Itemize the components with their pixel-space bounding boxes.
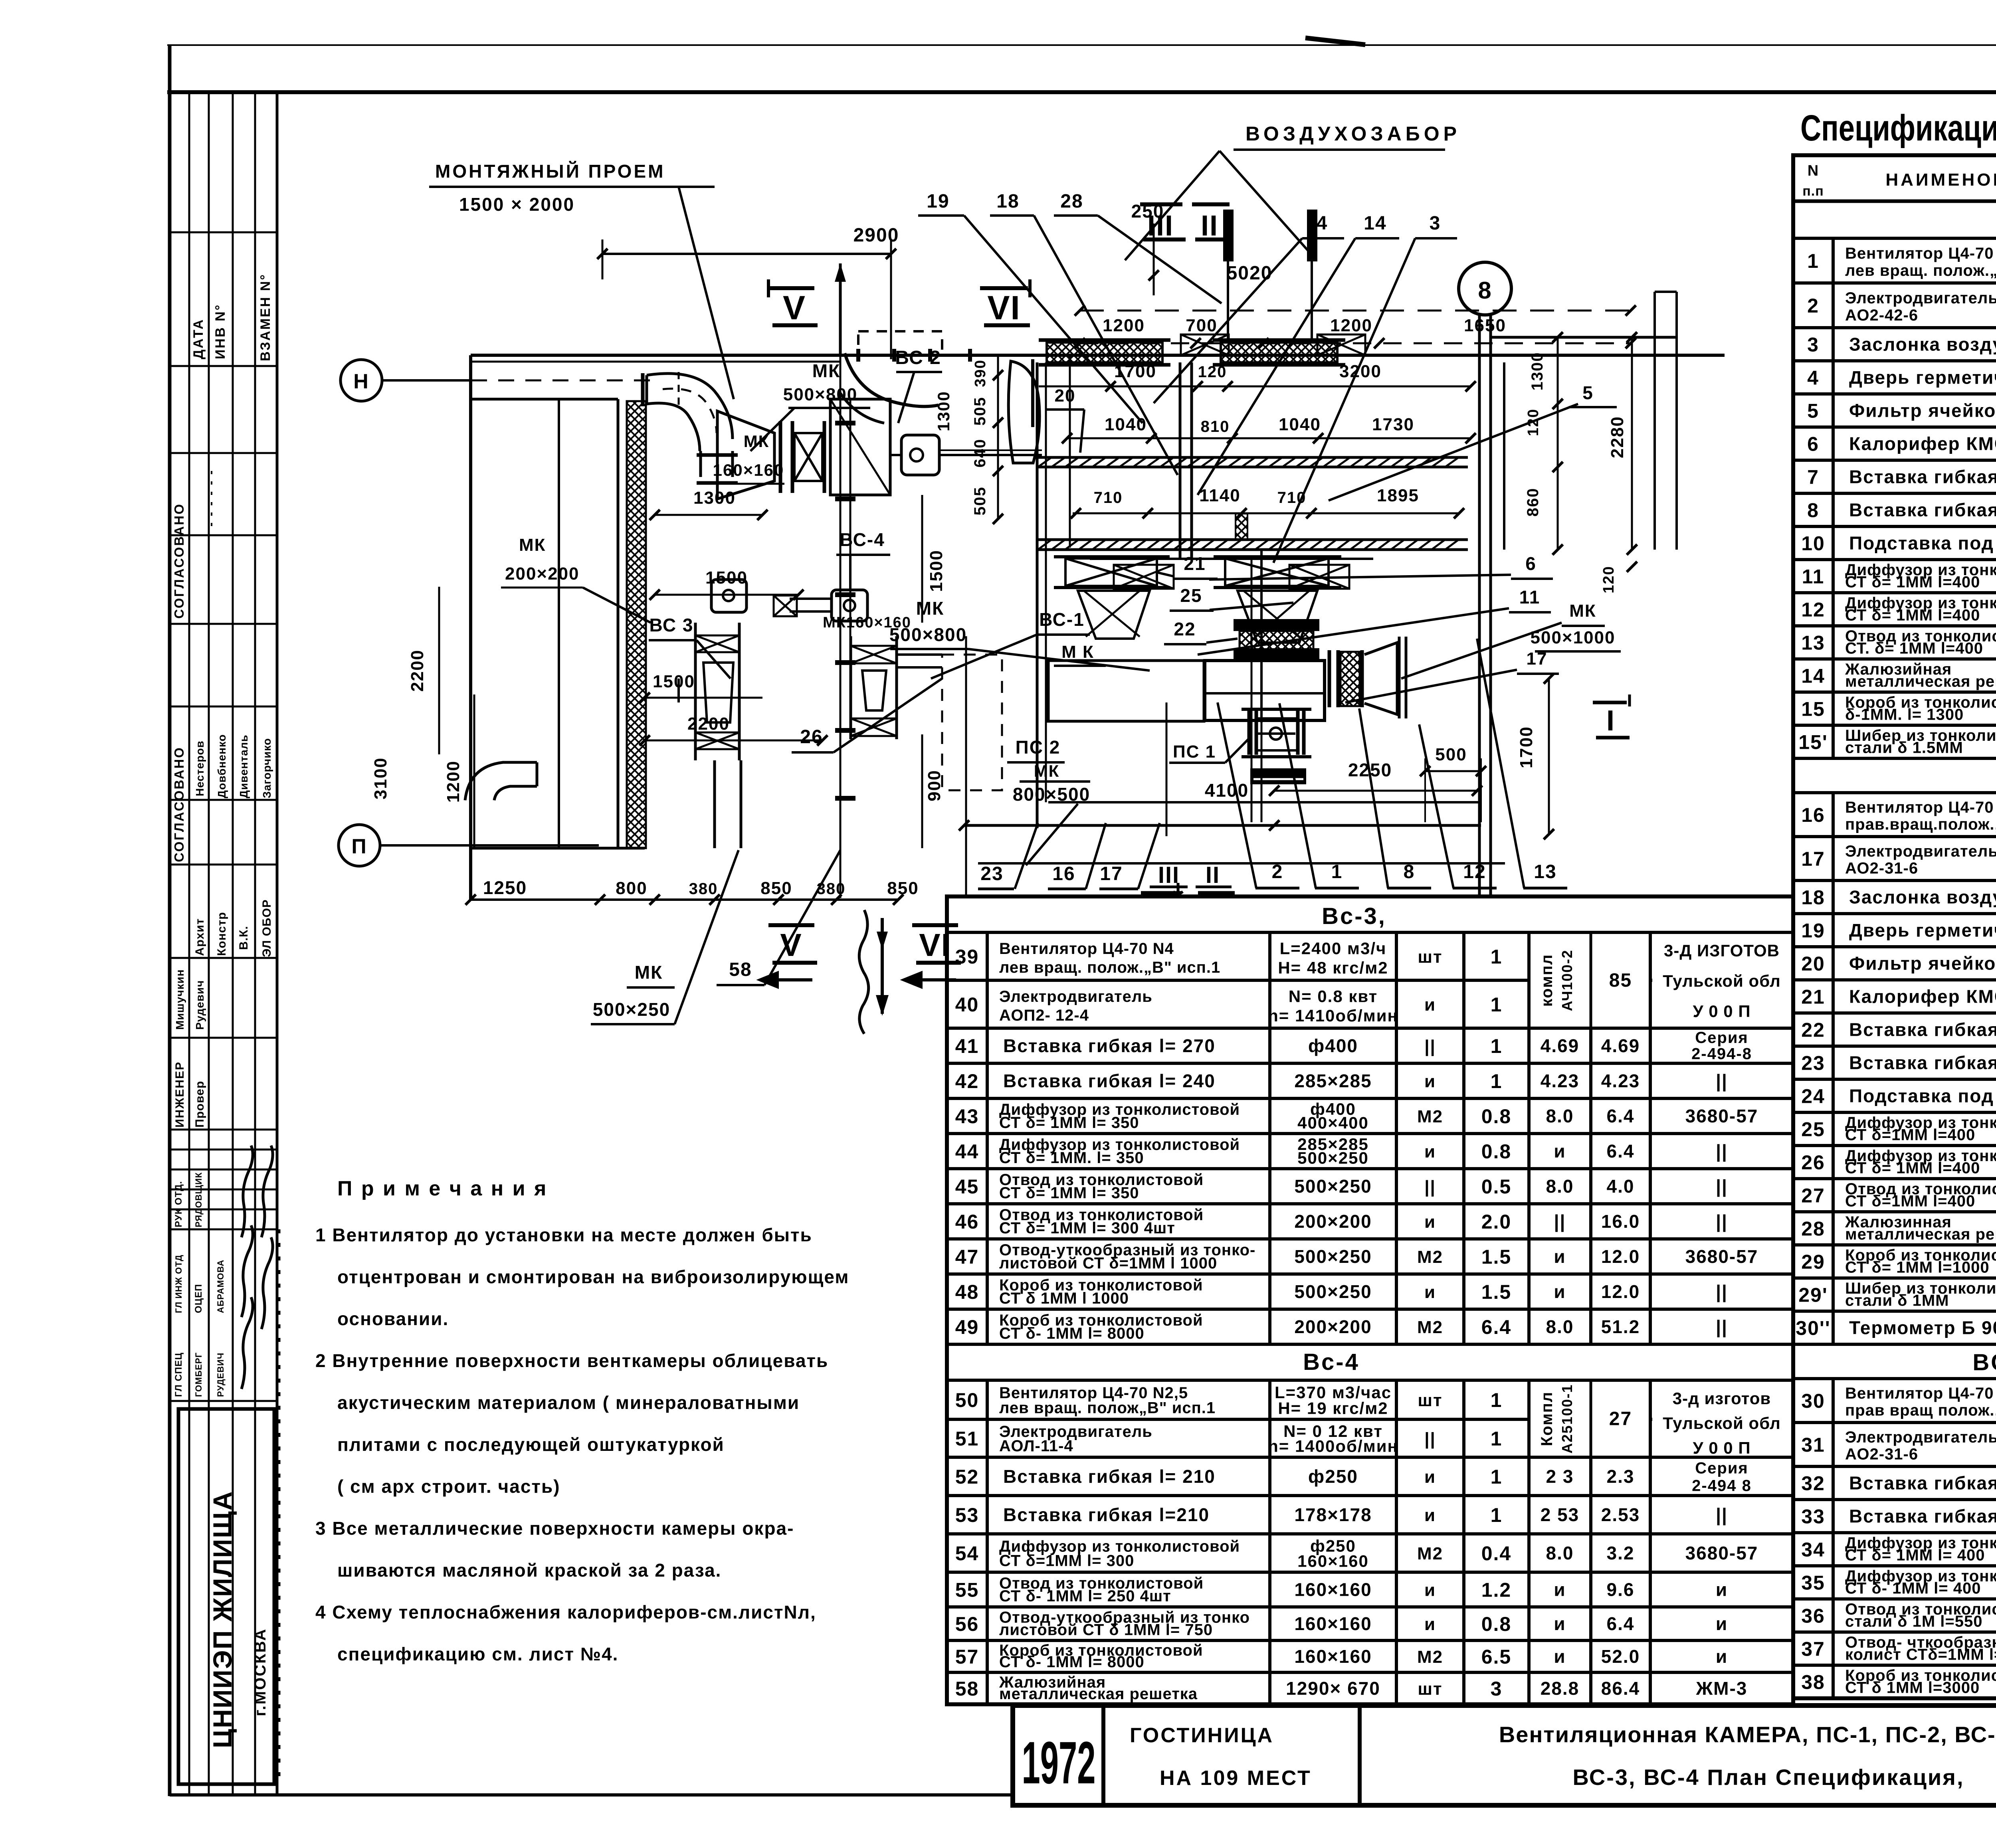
svg-text:Вставка гибкая l=300: Вставка гибкая l=300 <box>1849 1506 1996 1527</box>
svg-text:21: 21 <box>1184 553 1206 574</box>
svg-text:п.п: п.п <box>1802 184 1824 199</box>
svg-text:и: и <box>1716 1646 1728 1667</box>
svg-text:32: 32 <box>1801 1472 1825 1495</box>
svg-text:шиваются масляной краско: шиваются масляной краской за 2 раза. <box>337 1560 721 1581</box>
svg-text:n= 1410об/мин: n= 1410об/мин <box>1268 1006 1398 1025</box>
svg-text:В.К.: В.К. <box>237 926 250 950</box>
svg-text:Вставка гибкая l=300: Вставка гибкая l=300 <box>1849 1053 1996 1073</box>
svg-text:58: 58 <box>955 1678 979 1700</box>
svg-text:Дивенталь: Дивенталь <box>238 734 250 798</box>
svg-text:РУК ОТД.: РУК ОТД. <box>173 1181 184 1227</box>
svg-text:и: и <box>1424 1581 1436 1600</box>
svg-text:||: || <box>1716 1141 1728 1161</box>
svg-text:Вставка гибкая l=320: Вставка гибкая l=320 <box>1849 1019 1996 1040</box>
svg-text:СТ δ=1ММ l=400: СТ δ=1ММ l=400 <box>1845 1193 1975 1210</box>
svg-text:стали δ 1М l=550: стали δ 1М l=550 <box>1845 1613 1982 1630</box>
svg-text:25: 25 <box>1801 1118 1825 1141</box>
svg-text:ЦНИИЭП ЖИЛИЩА: ЦНИИЭП ЖИЛИЩА <box>208 1491 237 1748</box>
svg-text:6: 6 <box>1525 553 1537 574</box>
svg-text:700: 700 <box>1186 316 1217 335</box>
svg-text:Тульской обл: Тульской обл <box>1663 971 1781 990</box>
svg-text:МК: МК <box>635 962 663 983</box>
svg-text:СТ δ= 1ММ. l= 350: СТ δ= 1ММ. l= 350 <box>999 1149 1144 1167</box>
svg-text:1500 × 2000: 1500 × 2000 <box>459 194 575 215</box>
svg-text:2.0: 2.0 <box>1481 1211 1512 1233</box>
svg-text:СТ δ= 1ММ l=400: СТ δ= 1ММ l=400 <box>1845 574 1980 591</box>
svg-text:2: 2 <box>1807 295 1819 317</box>
svg-text:390: 390 <box>972 359 989 387</box>
svg-text:11: 11 <box>1519 587 1541 607</box>
svg-text:АО2-31-6: АО2-31-6 <box>1845 859 1918 877</box>
svg-text:2200: 2200 <box>408 649 427 692</box>
svg-text:1.5: 1.5 <box>1481 1246 1512 1268</box>
svg-text:N= 0.8 квт: N= 0.8 квт <box>1289 987 1378 1005</box>
svg-text:||: || <box>1424 1037 1436 1057</box>
svg-text:3: 3 <box>1491 1678 1503 1700</box>
svg-text:Провер: Провер <box>193 1081 206 1128</box>
svg-text:ВС-3, ВС-4 План Специфика: ВС-3, ВС-4 План Спецификация, <box>1572 1765 1964 1790</box>
svg-text:5020: 5020 <box>1227 263 1273 284</box>
svg-text:Тульской обл: Тульской обл <box>1663 1414 1781 1432</box>
svg-text:2 3: 2 3 <box>1546 1466 1574 1487</box>
svg-text:Электродвигатель: Электродвигатель <box>1845 843 1996 860</box>
svg-text:710: 710 <box>1277 489 1307 507</box>
svg-text:6.4: 6.4 <box>1607 1106 1635 1126</box>
svg-text:3: 3 <box>1430 213 1441 234</box>
svg-text:40: 40 <box>955 993 979 1016</box>
svg-text:Дверь герметическая: Дверь герметическая <box>1849 367 1996 388</box>
svg-text:29: 29 <box>1801 1251 1825 1273</box>
svg-text:2 Внутренние поверхности ве: 2 Внутренние поверхности венткамеры обли… <box>315 1350 828 1371</box>
svg-text:2280: 2280 <box>1608 416 1627 458</box>
svg-text:и: и <box>1554 1579 1566 1600</box>
svg-text:1895: 1895 <box>1377 486 1419 505</box>
svg-text:33: 33 <box>1801 1506 1825 1528</box>
svg-text:12.0: 12.0 <box>1601 1281 1640 1302</box>
svg-text:1 Вентилятор до установки: 1 Вентилятор до установки на месте долже… <box>315 1225 812 1245</box>
svg-text:М2: М2 <box>1417 1544 1443 1563</box>
svg-text:г.МОСКВА: г.МОСКВА <box>251 1628 269 1716</box>
svg-text:шт: шт <box>1418 1391 1442 1410</box>
svg-text:1972: 1972 <box>1022 1729 1096 1796</box>
svg-text:17: 17 <box>1100 863 1123 884</box>
svg-text:1: 1 <box>1491 1466 1503 1488</box>
svg-text:850: 850 <box>760 878 792 898</box>
svg-text:0.8: 0.8 <box>1481 1613 1512 1635</box>
svg-text:5: 5 <box>1582 382 1594 403</box>
svg-text:( см арх строит. часть): ( см арх строит. часть) <box>337 1476 560 1497</box>
svg-text:16: 16 <box>1801 804 1825 826</box>
svg-text:Дверь герметическая: Дверь герметическая <box>1849 920 1996 941</box>
svg-text:1300: 1300 <box>934 391 953 431</box>
svg-text:2-494-8: 2-494-8 <box>1691 1045 1752 1063</box>
svg-text:200×200: 200×200 <box>1294 1211 1372 1232</box>
svg-text:500: 500 <box>1435 745 1467 764</box>
svg-text:1200: 1200 <box>1330 316 1372 335</box>
svg-text:1: 1 <box>1491 1035 1503 1057</box>
svg-text:М2: М2 <box>1417 1318 1443 1337</box>
svg-text:и: и <box>1716 1579 1728 1600</box>
svg-text:800: 800 <box>616 878 647 898</box>
svg-text:51.2: 51.2 <box>1601 1316 1640 1337</box>
svg-text:4.69: 4.69 <box>1541 1035 1580 1056</box>
svg-text:16.0: 16.0 <box>1601 1211 1640 1232</box>
svg-text:Электродвигатель: Электродвигатель <box>999 988 1152 1005</box>
svg-text:25: 25 <box>1180 585 1202 606</box>
svg-text:200×200: 200×200 <box>505 564 580 584</box>
svg-text:14: 14 <box>1801 665 1825 687</box>
svg-text:МК: МК <box>916 598 944 619</box>
svg-text:Подставка под калорифер: Подставка под калорифер <box>1849 1086 1996 1106</box>
svg-text:28.8: 28.8 <box>1541 1678 1580 1699</box>
svg-text:120: 120 <box>1525 408 1542 436</box>
svg-text:N: N <box>1808 162 1819 179</box>
svg-text:ВС-4: ВС-4 <box>840 529 885 550</box>
svg-text:1.5: 1.5 <box>1481 1281 1512 1303</box>
svg-text:ЖМ-3: ЖМ-3 <box>1696 1678 1748 1699</box>
svg-text:ДАТА: ДАТА <box>191 319 206 359</box>
svg-text:46: 46 <box>955 1211 979 1233</box>
svg-text:ф400: ф400 <box>1308 1035 1358 1056</box>
svg-text:1700: 1700 <box>1517 726 1536 768</box>
svg-text:53: 53 <box>955 1504 979 1526</box>
svg-text:и: и <box>1424 1506 1436 1525</box>
svg-text:Фильтр ячейковый: Фильтр ячейковый <box>1849 400 1996 421</box>
svg-text:П: П <box>351 835 367 858</box>
svg-text:50: 50 <box>955 1389 979 1411</box>
svg-text:2.3: 2.3 <box>1607 1466 1635 1487</box>
svg-text:3-Д ИЗГОТОВ: 3-Д ИЗГОТОВ <box>1664 941 1780 960</box>
svg-text:5: 5 <box>1807 400 1819 422</box>
svg-text:47: 47 <box>955 1246 979 1268</box>
svg-text:ИНВ N°: ИНВ N° <box>213 304 228 359</box>
svg-text:Компл: Компл <box>1538 1391 1556 1446</box>
svg-text:3680-57: 3680-57 <box>1685 1246 1758 1267</box>
svg-text:V: V <box>780 927 802 963</box>
svg-text:19: 19 <box>1801 920 1825 942</box>
svg-text:27: 27 <box>1609 1409 1632 1430</box>
svg-text:и: и <box>1554 1246 1566 1267</box>
svg-text:Вставка гибкая l= 210: Вставка гибкая l= 210 <box>1003 1466 1216 1487</box>
svg-text:6.4: 6.4 <box>1607 1613 1635 1634</box>
svg-text:Вентиляционная КАМЕРА, ПС-: Вентиляционная КАМЕРА, ПС-1, ПС-2, ВС-1;… <box>1499 1722 1996 1747</box>
svg-text:1140: 1140 <box>1199 486 1240 505</box>
svg-text:МОНТЯЖНЫЙ ПРОЕМ: МОНТЯЖНЫЙ ПРОЕМ <box>435 161 665 182</box>
svg-text:Нестеров: Нестеров <box>194 740 206 796</box>
svg-text:2200: 2200 <box>687 714 730 734</box>
svg-text:500×250: 500×250 <box>1294 1281 1372 1302</box>
svg-text:6.4: 6.4 <box>1607 1141 1635 1161</box>
svg-text:505: 505 <box>971 397 989 426</box>
svg-text:||: || <box>1424 1429 1436 1449</box>
svg-text:2900: 2900 <box>853 225 899 246</box>
svg-text:||: || <box>1716 1176 1728 1197</box>
svg-text:СТ δ= 1ММ l= 400: СТ δ= 1ММ l= 400 <box>1845 1547 1985 1564</box>
svg-text:850: 850 <box>887 878 919 898</box>
svg-text:1: 1 <box>1491 993 1503 1016</box>
svg-text:ИНЖЕНЕР: ИНЖЕНЕР <box>173 1061 186 1128</box>
svg-text:МК: МК <box>812 360 840 381</box>
svg-text:12: 12 <box>1801 599 1825 621</box>
svg-text:Калорифер КМС: Калорифер КМС <box>1849 433 1996 454</box>
svg-text:II: II <box>1206 862 1220 888</box>
svg-text:У 0 0 П: У 0 0 П <box>1693 1002 1750 1021</box>
svg-text:54: 54 <box>955 1542 979 1565</box>
svg-text:СОГЛАСОВАНО: СОГЛАСОВАНО <box>172 503 186 619</box>
svg-text:Вс-3,: Вс-3, <box>1322 903 1386 929</box>
svg-text:ОЦЕП: ОЦЕП <box>193 1284 204 1313</box>
svg-text:и: и <box>1424 1615 1436 1634</box>
svg-text:Калорифер КМС-4: Калорифер КМС-4 <box>1849 986 1996 1007</box>
svg-text:лев вращ. полож„В" исп.1: лев вращ. полож„В" исп.1 <box>999 1399 1216 1417</box>
svg-text:АОП2- 12-4: АОП2- 12-4 <box>999 1007 1089 1024</box>
svg-text:31: 31 <box>1801 1434 1825 1456</box>
svg-text:1040: 1040 <box>1105 415 1147 434</box>
svg-text:3-д изготов: 3-д изготов <box>1673 1389 1771 1408</box>
svg-text:500×250: 500×250 <box>1297 1149 1369 1167</box>
svg-text:1730: 1730 <box>1372 415 1414 434</box>
svg-text:4 Схему теплоснабжения ка: 4 Схему теплоснабжения калориферов-см.ли… <box>315 1602 816 1622</box>
svg-text:δ-1ММ. l= 1300: δ-1ММ. l= 1300 <box>1845 706 1964 724</box>
svg-text:стали δ 1ММ: стали δ 1ММ <box>1845 1292 1949 1310</box>
svg-text:500×250: 500×250 <box>1294 1246 1372 1267</box>
svg-text:Мишучкин: Мишучкин <box>174 969 186 1030</box>
svg-text:стали δ 1.5ММ: стали δ 1.5ММ <box>1845 739 1963 757</box>
svg-text:Вставка гибкая l=300: Вставка гибкая l=300 <box>1849 500 1996 520</box>
svg-text:58: 58 <box>729 959 752 980</box>
svg-text:8.0: 8.0 <box>1546 1106 1574 1126</box>
svg-text:4: 4 <box>1807 367 1819 389</box>
svg-text:30: 30 <box>1801 1390 1825 1412</box>
svg-text:56: 56 <box>955 1613 979 1635</box>
svg-text:10: 10 <box>1801 532 1825 555</box>
svg-text:М2: М2 <box>1417 1647 1443 1667</box>
svg-text:21: 21 <box>1801 986 1825 1008</box>
svg-text:3 Все металлические поверх: 3 Все металлические поверхности камеры о… <box>315 1518 794 1539</box>
svg-text:23: 23 <box>980 863 1003 884</box>
svg-text:57: 57 <box>955 1646 979 1668</box>
svg-text:П р и м е ч а н и я: П р и м е ч а н и я <box>337 1177 548 1200</box>
svg-text:НА 109 МЕСТ: НА 109 МЕСТ <box>1160 1767 1312 1790</box>
svg-text:85: 85 <box>1609 970 1632 991</box>
svg-text:ГЛ СПЕЦ: ГЛ СПЕЦ <box>173 1352 184 1397</box>
svg-text:Вставка гибкая l= 270: Вставка гибкая l= 270 <box>1003 1035 1216 1056</box>
svg-text:МК: МК <box>1569 601 1596 621</box>
svg-text:26: 26 <box>1801 1152 1825 1174</box>
svg-text:АОЛ-11-4: АОЛ-11-4 <box>999 1437 1073 1455</box>
svg-text:1: 1 <box>1491 1389 1503 1411</box>
svg-text:СТ δ= 1ММ l=400: СТ δ= 1ММ l=400 <box>1845 607 1980 624</box>
svg-text:1300: 1300 <box>1529 352 1546 391</box>
svg-text:1: 1 <box>1491 1428 1503 1450</box>
svg-text:СТ δ= 1ММ l=1000: СТ δ= 1ММ l=1000 <box>1845 1259 1990 1276</box>
svg-text:Термометр Б 90N4-2°110-300: Термометр Б 90N4-2°110-300 <box>1849 1318 1996 1338</box>
svg-text:листовой СТ δ=1ММ l 1000: листовой СТ δ=1ММ l 1000 <box>999 1254 1217 1272</box>
svg-text:спецификацию см. лист №4: спецификацию см. лист №4. <box>337 1644 618 1664</box>
svg-text:шт: шт <box>1418 947 1442 967</box>
svg-text:30'': 30'' <box>1796 1317 1830 1340</box>
svg-text:ф250: ф250 <box>1308 1466 1358 1487</box>
svg-text:У 0 0 П: У 0 0 П <box>1693 1438 1750 1457</box>
svg-text:Вставка гибкая l=320: Вставка гибкая l=320 <box>1849 467 1996 487</box>
svg-text:прав вращ полож.„В", исп.1: прав вращ полож.„В", исп.1 <box>1845 1401 1996 1419</box>
svg-text:13: 13 <box>1534 861 1556 882</box>
svg-text:VI: VI <box>987 289 1020 326</box>
svg-text:плитами с последующей ош: плитами с последующей оштукатуркой <box>337 1434 725 1455</box>
svg-text:Архит: Архит <box>193 918 206 956</box>
svg-text:810: 810 <box>1201 418 1230 435</box>
svg-text:II: II <box>1201 210 1218 242</box>
svg-text:3100: 3100 <box>371 757 390 799</box>
svg-text:2.53: 2.53 <box>1601 1504 1640 1525</box>
svg-text:4.69: 4.69 <box>1601 1035 1640 1056</box>
svg-text:и: и <box>1716 1613 1728 1634</box>
svg-text:160×160: 160×160 <box>1294 1579 1372 1600</box>
svg-text:СТ δ- 1ММ l= 8000: СТ δ- 1ММ l= 8000 <box>999 1325 1145 1342</box>
svg-text:СТ δ- 1ММ l= 8000: СТ δ- 1ММ l= 8000 <box>999 1653 1145 1671</box>
svg-text:СТ δ= 1ММ l= 350: СТ δ= 1ММ l= 350 <box>999 1114 1139 1132</box>
svg-text:ПС 1: ПС 1 <box>1173 742 1216 762</box>
svg-text:1: 1 <box>1491 946 1503 968</box>
svg-text:160×160: 160×160 <box>1297 1552 1369 1571</box>
svg-text:и: и <box>1424 1282 1436 1302</box>
svg-text:8.0: 8.0 <box>1546 1176 1574 1197</box>
svg-text:||: || <box>1716 1504 1728 1525</box>
svg-text:13: 13 <box>1801 632 1825 654</box>
svg-text:ВС-1, ВС-2, (НА ОДНУ В: ВС-1, ВС-2, (НА ОДНУ ВЕНТКАМЕРУ) <box>1972 1349 1996 1375</box>
svg-text:Констр: Констр <box>215 912 228 956</box>
svg-text:52.0: 52.0 <box>1601 1646 1640 1667</box>
svg-text:500×250: 500×250 <box>1294 1176 1372 1197</box>
svg-text:48: 48 <box>955 1281 979 1303</box>
svg-text:1300: 1300 <box>693 488 736 508</box>
svg-text:17: 17 <box>1527 649 1548 669</box>
svg-text:Н: Н <box>353 370 369 393</box>
svg-text:III: III <box>1158 862 1180 888</box>
svg-text:26: 26 <box>800 726 823 748</box>
svg-text:3: 3 <box>1807 334 1819 356</box>
svg-text:ВС 2: ВС 2 <box>895 347 941 368</box>
svg-text:250: 250 <box>1131 201 1164 222</box>
svg-text:640: 640 <box>971 439 989 468</box>
svg-text:500×250: 500×250 <box>593 999 670 1020</box>
svg-text:500×800: 500×800 <box>889 624 967 645</box>
svg-text:23: 23 <box>1801 1052 1825 1074</box>
svg-text:0.4: 0.4 <box>1481 1542 1512 1565</box>
svg-text:9.6: 9.6 <box>1607 1579 1635 1600</box>
svg-text:||: || <box>1716 1281 1728 1302</box>
svg-text:Вентилятор Ц4-70 N4: Вентилятор Ц4-70 N4 <box>999 940 1174 958</box>
svg-text:СТ δ- 1ММ l= 400: СТ δ- 1ММ l= 400 <box>1845 1580 1981 1597</box>
svg-text:3.2: 3.2 <box>1607 1543 1635 1563</box>
svg-text:120: 120 <box>1198 363 1227 381</box>
svg-text:I: I <box>1606 705 1615 737</box>
svg-text:8: 8 <box>1807 499 1819 522</box>
svg-text:1700: 1700 <box>1114 362 1156 381</box>
svg-text:лев вращ. полож.„В" исп.1: лев вращ. полож.„В" исп.1 <box>999 959 1220 976</box>
svg-text:ГОМБЕРГ: ГОМБЕРГ <box>194 1352 204 1397</box>
svg-text:ВОЗДУХОЗАБОР: ВОЗДУХОЗАБОР <box>1246 123 1461 145</box>
svg-text:металлическая решетка: металлическая решетка <box>1845 673 1996 691</box>
svg-text:2-494 8: 2-494 8 <box>1692 1477 1752 1494</box>
svg-text:4: 4 <box>1317 213 1328 234</box>
svg-text:Электродвигатель: Электродвигатель <box>1845 289 1996 307</box>
svg-text:и: и <box>1554 1646 1566 1667</box>
svg-text:СТ δ 1ММ l=3000: СТ δ 1ММ l=3000 <box>1845 1679 1980 1697</box>
svg-text:АО2-31-6: АО2-31-6 <box>1845 1445 1918 1463</box>
svg-text:22: 22 <box>1801 1019 1825 1041</box>
svg-text:4.23: 4.23 <box>1601 1070 1640 1091</box>
svg-text:Подставка под калорифер: Подставка под калорифер <box>1849 533 1996 554</box>
svg-text:шт: шт <box>1418 1679 1442 1699</box>
svg-text:35: 35 <box>1801 1572 1825 1594</box>
svg-text:1500: 1500 <box>927 550 946 592</box>
svg-text:||: || <box>1554 1211 1566 1232</box>
svg-text:1: 1 <box>1807 250 1819 272</box>
svg-text:МК: МК <box>519 535 546 555</box>
svg-text:44: 44 <box>955 1140 979 1163</box>
svg-text:Вставка гибкая l= 240: Вставка гибкая l= 240 <box>1003 1070 1216 1091</box>
svg-text:ВЗАМЕН N°: ВЗАМЕН N° <box>258 273 273 361</box>
svg-text:L=2400 м3/ч: L=2400 м3/ч <box>1280 939 1387 958</box>
svg-text:1200: 1200 <box>1103 316 1145 335</box>
svg-text:и: и <box>1424 1072 1436 1091</box>
svg-text:0.8: 0.8 <box>1481 1140 1512 1163</box>
svg-text:||: || <box>1424 1177 1436 1197</box>
svg-text:Вставка гибкая l=320: Вставка гибкая l=320 <box>1849 1473 1996 1494</box>
svg-text:37: 37 <box>1801 1638 1825 1660</box>
svg-text:1: 1 <box>1491 1504 1503 1526</box>
svg-text:17: 17 <box>1801 848 1825 870</box>
svg-text:55: 55 <box>955 1579 979 1601</box>
svg-text:n= 1400об/мин: n= 1400об/мин <box>1268 1437 1398 1456</box>
svg-text:27: 27 <box>1801 1185 1825 1207</box>
svg-text:колист СТδ=1ММ l= 1250: колист СТδ=1ММ l= 1250 <box>1845 1646 1996 1664</box>
svg-text:РЯДОВЩИК: РЯДОВЩИК <box>194 1172 204 1227</box>
svg-text:СТ. δ= 1ММ l=400: СТ. δ= 1ММ l=400 <box>1845 640 1983 657</box>
svg-text:основании.: основании. <box>337 1308 449 1329</box>
svg-text:Заслонка воздушная: Заслонка воздушная <box>1849 334 1996 355</box>
svg-text:Довбненко: Довбненко <box>216 734 228 798</box>
svg-text:М К: М К <box>1061 642 1094 662</box>
svg-text:7: 7 <box>1807 466 1819 489</box>
svg-text:15': 15' <box>1798 731 1828 754</box>
svg-text:прав.вращ.полож.„Л" исп.1: прав.вращ.полож.„Л" исп.1 <box>1845 815 1996 833</box>
svg-text:СТ δ=1ММ l= 300: СТ δ=1ММ l= 300 <box>999 1552 1134 1570</box>
svg-text:19: 19 <box>927 191 949 212</box>
svg-text:285×285: 285×285 <box>1294 1070 1372 1091</box>
svg-text:компл: компл <box>1538 954 1556 1007</box>
svg-text:3680-57: 3680-57 <box>1685 1106 1758 1126</box>
svg-text:Н= 48 кгс/м2: Н= 48 кгс/м2 <box>1278 958 1388 977</box>
svg-text:160×160: 160×160 <box>713 461 784 479</box>
svg-text:43: 43 <box>955 1105 979 1128</box>
svg-text:ГОСТИНИЦА: ГОСТИНИЦА <box>1130 1724 1274 1747</box>
svg-text:VI: VI <box>919 927 951 963</box>
svg-text:20: 20 <box>1055 386 1076 406</box>
svg-text:2 53: 2 53 <box>1541 1504 1580 1525</box>
svg-text:V: V <box>783 289 806 326</box>
svg-text:160×160: 160×160 <box>1294 1613 1372 1634</box>
svg-text:36: 36 <box>1801 1605 1825 1627</box>
svg-text:МК: МК <box>744 432 770 451</box>
svg-text:НАИМЕНОВАНИЕ: НАИМЕНОВАНИЕ <box>1885 170 1996 190</box>
svg-text:Вентилятор Ц4-70 N8: Вентилятор Ц4-70 N8 <box>1845 245 1996 262</box>
svg-text:29': 29' <box>1798 1284 1828 1306</box>
svg-text:СТ δ= 1ММ l=400: СТ δ= 1ММ l=400 <box>1845 1159 1980 1177</box>
svg-text:ЭЛ ОБОР: ЭЛ ОБОР <box>260 899 273 957</box>
svg-text:отцентрован и смонтирован н: отцентрован и смонтирован на виброизолир… <box>337 1266 849 1287</box>
